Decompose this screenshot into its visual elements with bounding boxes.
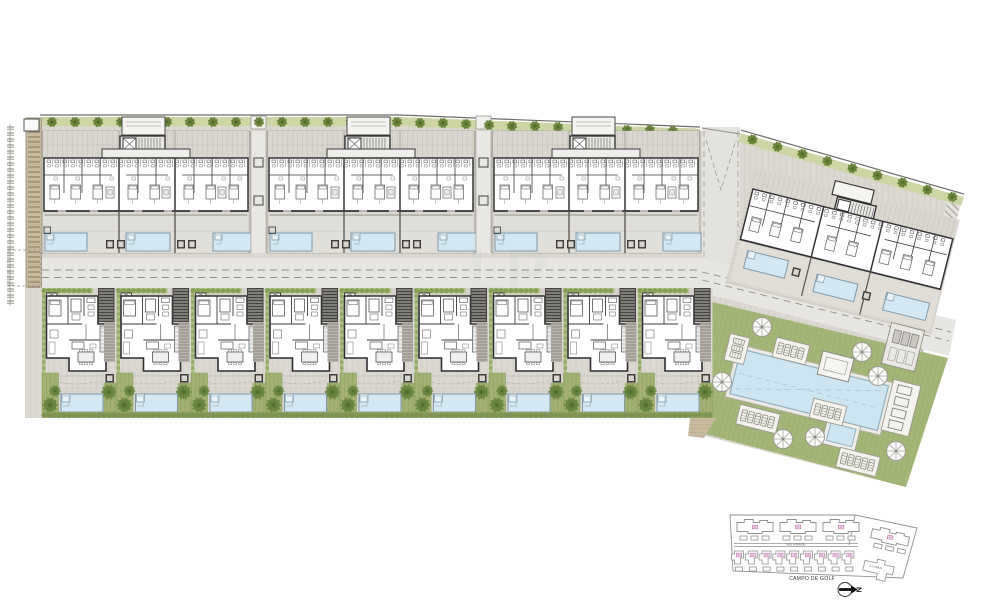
svg-text:N: N: [854, 587, 863, 592]
svg-text:LP: LP: [468, 237, 547, 306]
svg-text:VIAL INTERIOR: VIAL INTERIOR: [787, 543, 806, 547]
svg-text:CAMPO DE GOLF: CAMPO DE GOLF: [789, 576, 835, 582]
